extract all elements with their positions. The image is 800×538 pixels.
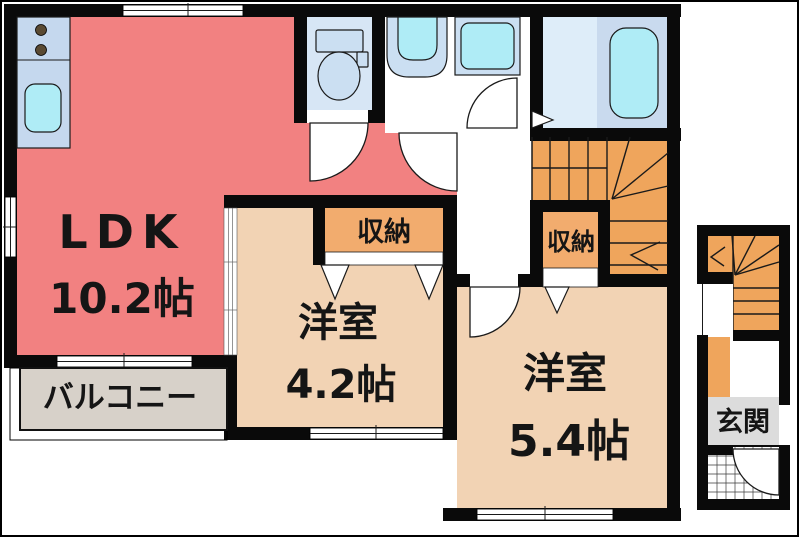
room54-label: 洋室 (523, 349, 607, 398)
entrance-door-opening (779, 405, 790, 445)
stove-burner-icon (36, 45, 47, 56)
kitchen-sink (25, 84, 61, 132)
washing-machine-tub (461, 23, 514, 69)
room54-size: 5.4帖 (508, 416, 630, 467)
hallway-floor (457, 133, 532, 274)
entrance-label: 玄関 (716, 406, 770, 438)
ldk-size: 10.2帖 (49, 274, 195, 323)
balcony-label: バルコニー (43, 380, 197, 416)
window-left (3, 197, 16, 257)
entrance-section (697, 225, 790, 510)
floorplan-canvas: LDK 10.2帖 洋室 4.2帖 洋室 5.4帖 収納 収納 バルコニー 玄関 (0, 0, 800, 538)
floorplan-drawing: LDK 10.2帖 洋室 4.2帖 洋室 5.4帖 収納 収納 バルコニー 玄関 (0, 0, 800, 538)
stove-burner-icon (36, 25, 47, 36)
room42-label: 洋室 (298, 300, 378, 346)
closet1-label: 収納 (357, 216, 411, 248)
window-top (123, 3, 243, 16)
room42-size: 4.2帖 (286, 362, 397, 408)
closet2-label: 収納 (547, 228, 595, 256)
bathtub (610, 28, 658, 118)
ldk-label: LDK (58, 205, 185, 259)
sliding-door-partition (224, 208, 237, 355)
kitchen-counter (17, 17, 70, 148)
vanity-basin (398, 17, 437, 60)
